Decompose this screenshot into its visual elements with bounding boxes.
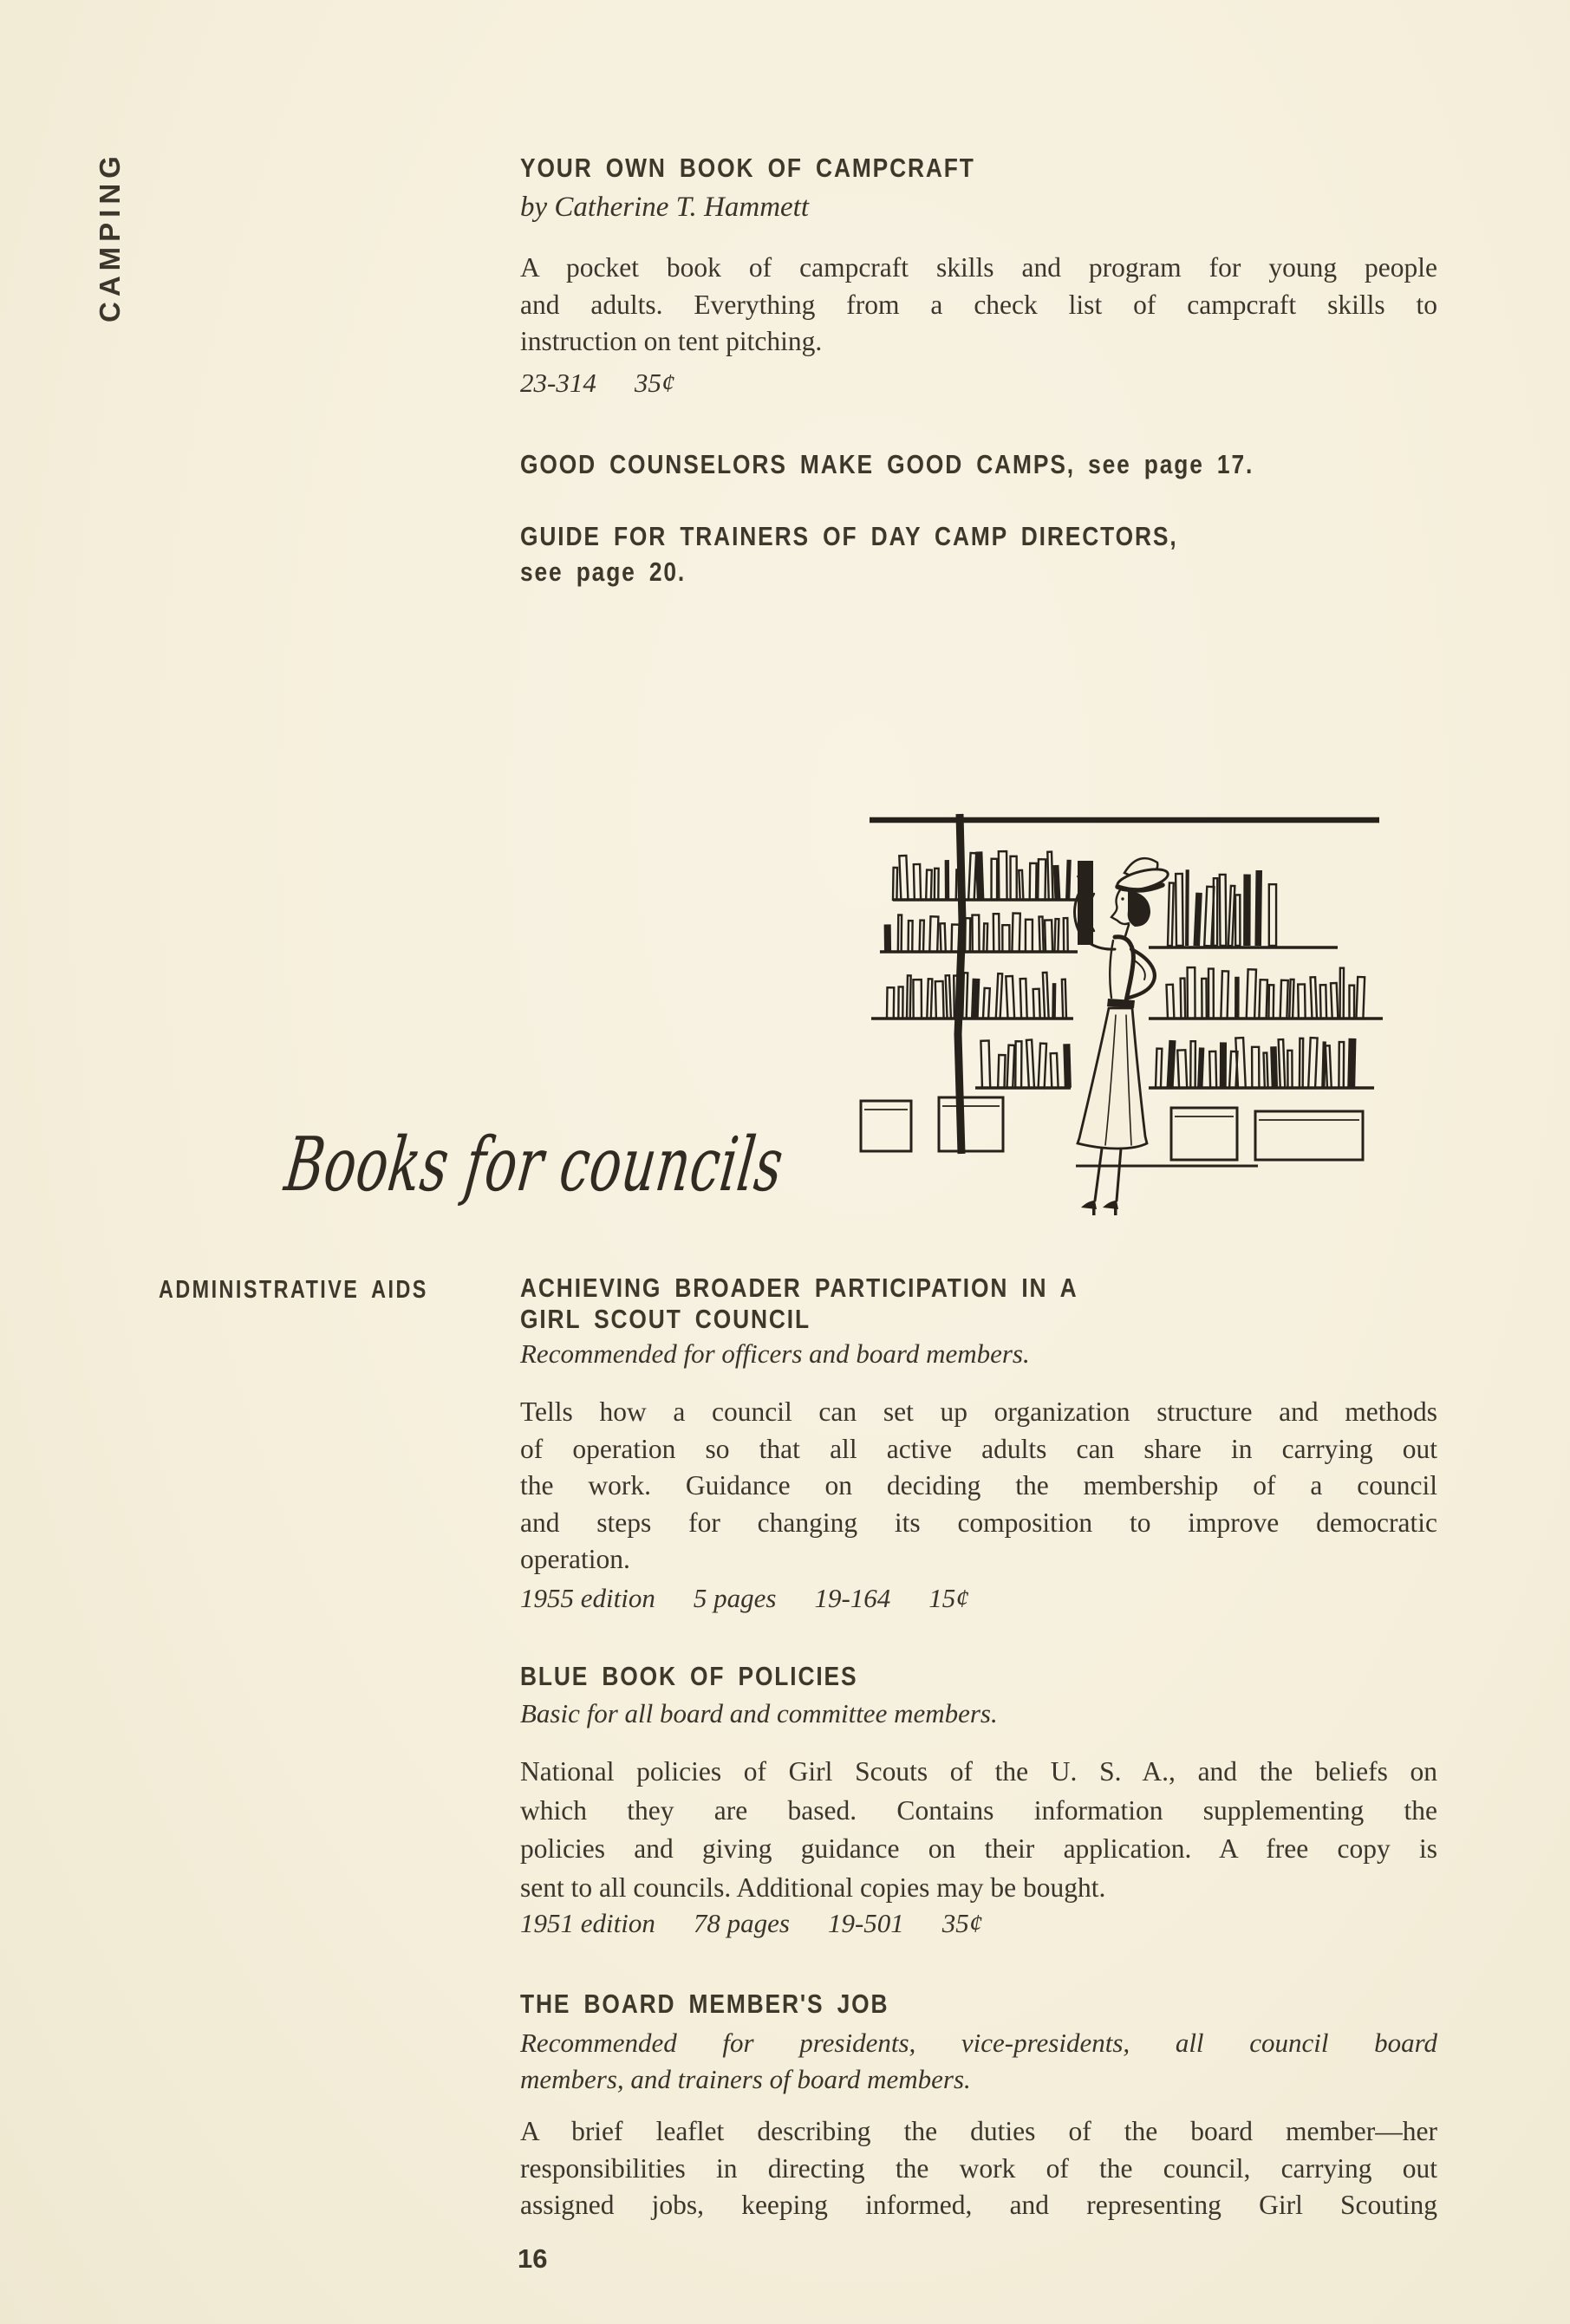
- book-spine: [1235, 895, 1240, 946]
- book-spine: [1063, 1044, 1072, 1088]
- book-spine: [996, 973, 1002, 1019]
- book-spine: [1039, 1044, 1046, 1089]
- book-spine: [935, 869, 939, 900]
- entry-meta-achieving: 1955 edition5 pages19-16415¢: [520, 1583, 969, 1614]
- shelf-post: [958, 814, 962, 1154]
- book-spine: [1208, 969, 1214, 1019]
- book-spine: [1220, 1042, 1227, 1088]
- book-spine: [945, 860, 950, 900]
- book-spine: [971, 979, 980, 1019]
- book-spine: [1268, 985, 1274, 1019]
- book-spine: [1051, 1053, 1059, 1088]
- book-spine: [898, 915, 902, 952]
- entry-title-achieving: ACHIEVING BROADER PARTICIPATION IN AGIRL…: [520, 1273, 1078, 1335]
- book-spine: [887, 987, 894, 1019]
- entry-meta-blue-book: 1951 edition78 pages19-50135¢: [520, 1908, 982, 1939]
- entry-title-campcraft: YOUR OWN BOOK OF CAMPCRAFT: [520, 153, 975, 184]
- meta-item: 1951 edition: [520, 1908, 655, 1939]
- book-spine: [946, 975, 951, 1019]
- book-spine: [1166, 1040, 1176, 1089]
- woman-figure: [1095, 1149, 1102, 1201]
- category-label: ADMINISTRATIVE AIDS: [159, 1274, 428, 1305]
- book-spine: [1190, 1041, 1195, 1088]
- book-spine: [1020, 979, 1027, 1019]
- cross-ref-guide-trainers: GUIDE FOR TRAINERS OF DAY CAMP DIRECTORS…: [520, 518, 1178, 589]
- meta-item: 1955 edition: [520, 1583, 655, 1614]
- text-line: A pocket book of campcraft skills and pr…: [520, 250, 1437, 287]
- book-spine: [1300, 1038, 1303, 1088]
- book-spine: [1202, 979, 1207, 1019]
- book-spine: [1347, 1038, 1356, 1088]
- woman-shoe: [1092, 1208, 1096, 1215]
- text-line: GIRL SCOUT COUNCIL: [520, 1304, 1078, 1335]
- book-spine: [1052, 983, 1056, 1019]
- book-spine: [993, 914, 1000, 952]
- book-spine: [1047, 852, 1052, 900]
- book-spine: [1181, 979, 1186, 1019]
- entry-audience-blue-book: Basic for all board and committee member…: [520, 1698, 998, 1729]
- book-spine: [1247, 969, 1256, 1019]
- woman-hair: [1128, 890, 1150, 927]
- book-spine: [1287, 1051, 1292, 1088]
- cross-ref-good-counselors: GOOD COUNSELORS MAKE GOOD CAMPS, see pag…: [520, 449, 1254, 480]
- book-spine: [1220, 875, 1227, 946]
- entry-body-achieving: Tells how a council can set up organizat…: [520, 1394, 1437, 1579]
- woman-shoe: [1103, 1201, 1118, 1209]
- book-spine: [1308, 1038, 1317, 1088]
- book-spine: [1176, 874, 1183, 946]
- entry-body-board-job: A brief leaflet describing the duties of…: [520, 2113, 1437, 2224]
- book-spine: [1011, 856, 1017, 900]
- book-spine: [1156, 1049, 1162, 1089]
- script-section-heading: Books for councils: [281, 1122, 788, 1208]
- book-spine: [1326, 1045, 1332, 1088]
- text-line: instruction on tent pitching.: [520, 323, 1437, 361]
- book-spine: [1033, 989, 1040, 1019]
- book-spine: [926, 870, 932, 901]
- text-line: sent to all councils. Additional copies …: [520, 1869, 1437, 1908]
- book-spine: [1002, 925, 1009, 952]
- book-spine: [1209, 1051, 1216, 1088]
- woman-at-bookshelf-drawing: [854, 809, 1391, 1225]
- book-spine: [907, 975, 911, 1019]
- book-spine: [1264, 1052, 1268, 1088]
- page-number: 16: [518, 2243, 547, 2275]
- book-spine: [1289, 980, 1293, 1019]
- entry-body-campcraft: A pocket book of campcraft skills and pr…: [520, 250, 1437, 361]
- book-spine: [1228, 886, 1235, 946]
- book-spine: [1280, 980, 1288, 1019]
- book-spine: [1065, 860, 1072, 900]
- book-spine: [1026, 1040, 1034, 1088]
- text-line: responsibilities in directing the work o…: [520, 2151, 1437, 2188]
- book-spine: [1012, 914, 1020, 953]
- book-spine: [1026, 920, 1033, 952]
- book-spine: [1252, 1047, 1259, 1088]
- cabinet: [861, 1101, 911, 1151]
- cabinet: [1255, 1111, 1363, 1160]
- woman-figure: [1115, 937, 1133, 1001]
- book-spine: [1030, 863, 1037, 900]
- text-line: ACHIEVING BROADER PARTICIPATION IN A: [520, 1273, 1078, 1304]
- book-spine: [1339, 1042, 1344, 1088]
- book-spine: [1193, 893, 1202, 947]
- book-spine: [935, 981, 944, 1019]
- book-spine: [1311, 977, 1317, 1019]
- book-spine: [1221, 971, 1228, 1019]
- book-spine: [1279, 1039, 1286, 1088]
- text-line: policies and giving guidance on their ap…: [520, 1830, 1437, 1869]
- woman-figure: [1125, 925, 1129, 936]
- meta-item: 19-164: [814, 1583, 890, 1614]
- text-line: see page 20.: [520, 554, 1178, 589]
- book-spine: [1197, 1047, 1204, 1088]
- text-line: of operation so that all active adults c…: [520, 1431, 1437, 1468]
- book-spine: [992, 859, 998, 900]
- entry-meta-campcraft: 23-31435¢: [520, 368, 674, 399]
- text-line: which they are based. Contains informati…: [520, 1792, 1437, 1831]
- meta-item: 35¢: [942, 1908, 983, 1939]
- book-spine: [913, 980, 922, 1019]
- text-line: Recommended for presidents, vice-preside…: [520, 2025, 1437, 2061]
- margin-section-label: CAMPING: [94, 158, 127, 322]
- text-line: the work. Guidance on deciding the membe…: [520, 1468, 1437, 1505]
- book-spine: [1235, 1038, 1245, 1088]
- book-spine: [999, 851, 1007, 900]
- text-line: members, and trainers of board members.: [520, 2061, 1437, 2098]
- text-line: A brief leaflet describing the duties of…: [520, 2113, 1437, 2151]
- text-line: National policies of Girl Scouts of the …: [520, 1753, 1437, 1792]
- meta-item: 15¢: [928, 1583, 969, 1614]
- book-spine: [929, 916, 938, 952]
- book-spine: [909, 921, 913, 952]
- entry-body-blue-book: National policies of Girl Scouts of the …: [520, 1753, 1437, 1907]
- book-spine: [1214, 878, 1218, 946]
- text-line: assigned jobs, keeping informed, and rep…: [520, 2187, 1437, 2224]
- book-spine: [975, 851, 985, 900]
- book-spine: [983, 923, 987, 952]
- text-line: and adults. Everything from a check list…: [520, 287, 1437, 324]
- book-spine: [1269, 884, 1276, 946]
- book-spine: [1062, 980, 1066, 1019]
- book-spine: [983, 988, 990, 1019]
- book-spine: [1038, 859, 1046, 900]
- book-spine: [1039, 916, 1043, 952]
- text-line: Tells how a council can set up organizat…: [520, 1394, 1437, 1431]
- book-spine: [914, 864, 921, 900]
- book-spine: [1053, 865, 1061, 900]
- bookshelf-illustration: [854, 809, 1391, 1225]
- book-spine: [1270, 1046, 1278, 1088]
- book-spine: [1298, 984, 1305, 1019]
- book-spine: [1331, 983, 1338, 1019]
- book-spine: [898, 986, 902, 1019]
- book-spine: [1235, 977, 1240, 1019]
- entry-title-board-job: THE BOARD MEMBER'S JOB: [520, 1989, 889, 2020]
- book-spine: [1007, 1045, 1015, 1089]
- woman-belt: [1107, 999, 1135, 1008]
- book-spine: [1019, 870, 1023, 900]
- woman-eye: [1121, 897, 1124, 900]
- book-spine: [998, 1055, 1005, 1088]
- book-spine: [1340, 968, 1344, 1019]
- entry-audience-achieving: Recommended for officers and board membe…: [520, 1338, 1030, 1370]
- entry-title-blue-book: BLUE BOOK OF POLICIES: [520, 1661, 857, 1692]
- book-spine: [920, 921, 924, 953]
- book-spine: [968, 853, 976, 900]
- book-spine: [940, 923, 945, 952]
- book-spine: [1167, 985, 1175, 1019]
- book-spine: [1006, 976, 1014, 1019]
- book-spine: [1168, 882, 1174, 946]
- book-spine: [899, 856, 908, 900]
- book-spine: [1356, 977, 1365, 1019]
- entry-byline: by Catherine T. Hammett: [520, 192, 809, 224]
- book-spine: [1177, 1050, 1187, 1088]
- book-spine: [1188, 967, 1195, 1019]
- book-spine: [1349, 986, 1354, 1019]
- woman-figure: [1111, 886, 1129, 924]
- book-spine: [927, 979, 932, 1019]
- book-spine: [1054, 919, 1059, 952]
- text-line: and steps for changing its composition t…: [520, 1505, 1437, 1542]
- book-spine: [1185, 869, 1189, 946]
- book-spine: [1045, 920, 1052, 952]
- meta-item: 23-314: [520, 368, 596, 399]
- meta-item: 19-501: [828, 1908, 904, 1939]
- book-spine: [1320, 985, 1326, 1019]
- woman-shoe: [1114, 1208, 1117, 1215]
- text-line: operation.: [520, 1541, 1437, 1579]
- woman-shoe: [1081, 1201, 1097, 1209]
- meta-item: 35¢: [635, 368, 675, 399]
- book-spine: [884, 924, 891, 952]
- catalog-page: CAMPING YOUR OWN BOOK OF CAMPCRAFT by Ca…: [0, 0, 1570, 2324]
- woman-skirt: [1078, 1008, 1147, 1149]
- book-spine: [972, 915, 979, 952]
- cabinet: [1171, 1108, 1237, 1160]
- meta-item: 5 pages: [694, 1583, 777, 1614]
- book-spine: [893, 868, 897, 900]
- text-line: GUIDE FOR TRAINERS OF DAY CAMP DIRECTORS…: [520, 518, 1178, 554]
- book-spine: [1259, 980, 1267, 1019]
- entry-audience-board-job: Recommended for presidents, vice-preside…: [520, 2025, 1437, 2098]
- book-spine: [1043, 973, 1049, 1019]
- book-spine: [980, 1041, 990, 1088]
- book-spine: [1015, 1041, 1021, 1088]
- woman-figure: [1117, 1149, 1121, 1201]
- meta-item: 78 pages: [694, 1908, 790, 1939]
- book-spine: [1254, 870, 1262, 946]
- book-spine: [1064, 918, 1068, 952]
- book-spine: [1243, 875, 1251, 946]
